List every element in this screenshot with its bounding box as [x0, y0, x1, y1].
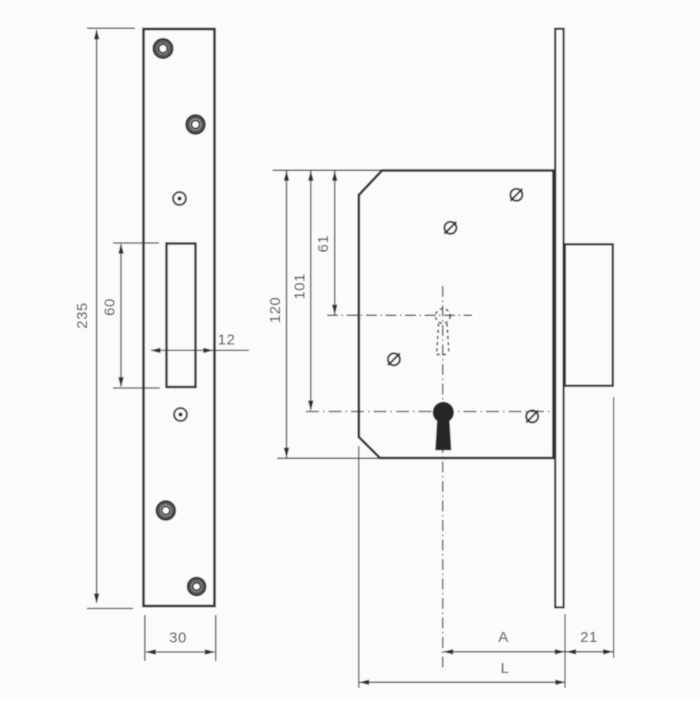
- svg-text:30: 30: [169, 629, 187, 646]
- svg-text:60: 60: [102, 298, 119, 316]
- svg-text:L: L: [501, 660, 510, 677]
- svg-text:101: 101: [292, 273, 309, 300]
- svg-text:21: 21: [580, 629, 598, 646]
- svg-text:12: 12: [218, 331, 236, 348]
- svg-text:120: 120: [267, 297, 284, 324]
- svg-text:A: A: [498, 629, 509, 646]
- svg-text:61: 61: [315, 235, 332, 253]
- svg-text:235: 235: [74, 302, 91, 329]
